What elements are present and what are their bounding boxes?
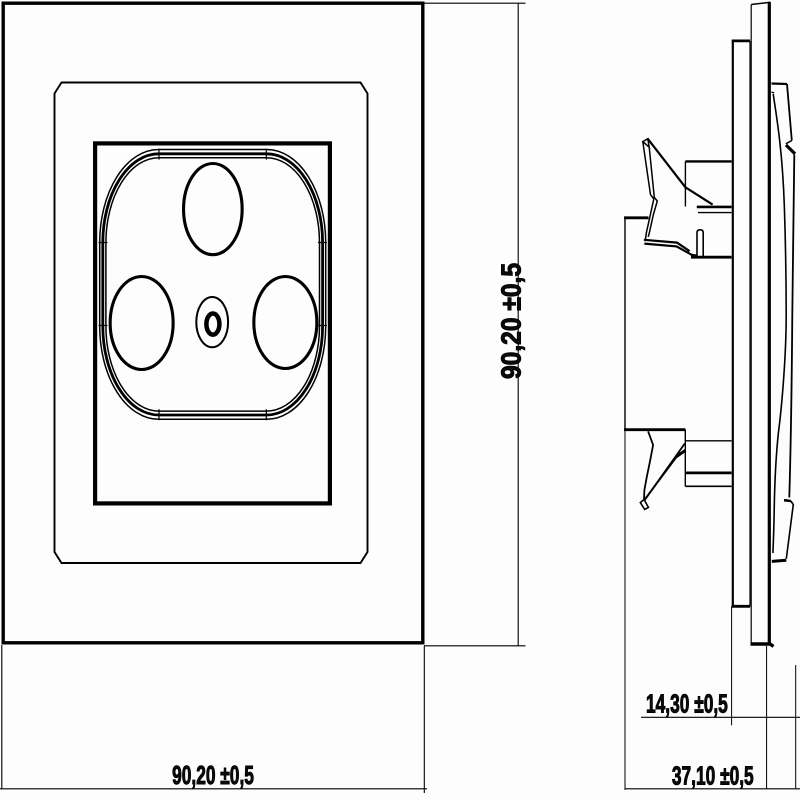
svg-text:90,20 ±0,5: 90,20 ±0,5: [172, 760, 254, 789]
svg-text:90,20 ±0,5: 90,20 ±0,5: [495, 263, 527, 379]
svg-text:37,10 ±0,5: 37,10 ±0,5: [672, 761, 754, 790]
svg-text:14,30 ±0,5: 14,30 ±0,5: [646, 689, 728, 718]
